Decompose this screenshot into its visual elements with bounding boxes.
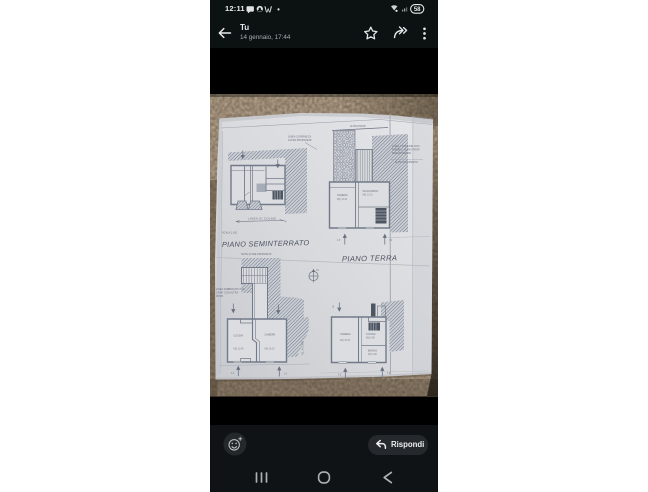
svg-text:MQ 16.20: MQ 16.20 [265, 349, 276, 351]
svg-text:NOTE ALTRE PROPRIETA': NOTE ALTRE PROPRIETA' [241, 253, 272, 256]
svg-text:ALTRA PROPRIETA': ALTRA PROPRIETA' [395, 161, 419, 164]
svg-text:N: N [317, 268, 319, 272]
svg-text:LINEA CONFINE DI: LINEA CONFINE DI [288, 135, 311, 139]
svg-text:MQ 12.10: MQ 12.10 [363, 195, 374, 197]
svg-text:BAGNO: BAGNO [368, 350, 377, 353]
svg-text:ALTRA PROP.: ALTRA PROP. [350, 125, 366, 128]
svg-text:PREESISTENTE: PREESISTENTE [392, 152, 411, 155]
svg-text:PIANO SEMINTERRATO: PIANO SEMINTERRATO [222, 238, 310, 249]
svg-text:RIL. A CONF.: RIL. A CONF. [302, 340, 305, 355]
svg-text:SCALA 1:100: SCALA 1:100 [222, 232, 238, 235]
svg-text:MQ 4.60: MQ 4.60 [368, 354, 378, 356]
svg-text:CAMERA: CAMERA [340, 333, 351, 336]
svg-text:SOGGIORNO: SOGGIORNO [363, 190, 379, 193]
svg-text:MQ 12.45: MQ 12.45 [234, 349, 245, 351]
svg-text:CAMERA: CAMERA [265, 334, 276, 337]
svg-text:CUCINA: CUCINA [234, 335, 244, 338]
svg-text:MQ 15.10: MQ 15.10 [340, 340, 351, 342]
svg-text:CUCINA: CUCINA [366, 333, 376, 336]
svg-text:PROP.: PROP. [216, 295, 224, 298]
svg-text:CAMERA: CAMERA [337, 194, 348, 197]
svg-text:ALTRA PROPRIETA': ALTRA PROPRIETA' [288, 138, 313, 142]
svg-text:58: 58 [414, 7, 421, 13]
svg-text:MQ 9.80: MQ 9.80 [366, 338, 376, 340]
svg-text:PIANO TERRA: PIANO TERRA [342, 253, 398, 263]
svg-text:MQ 14.30: MQ 14.30 [337, 199, 348, 201]
svg-text:LINEA DI COLMO: LINEA DI COLMO [248, 217, 277, 221]
